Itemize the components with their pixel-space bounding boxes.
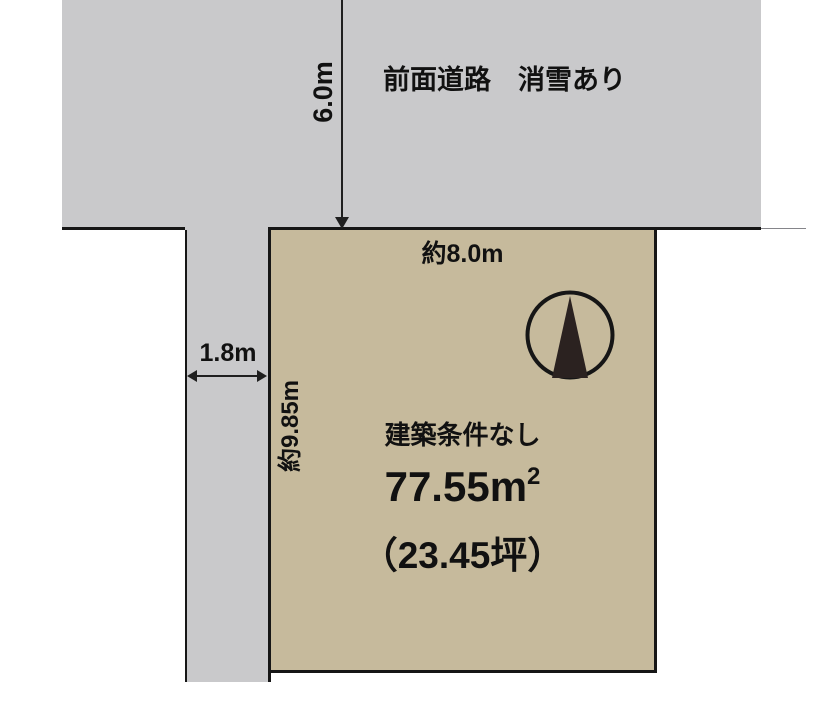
arrow-left-head-icon [187,370,197,382]
north-compass-icon [524,289,616,381]
north-needle-icon [552,296,588,378]
area-tsubo-value: （23.45坪） [268,536,657,577]
area-sqm-base: 77.55m [385,463,527,510]
side-path-width-dimension: 1.8m [185,340,271,368]
arrow-right-head-icon [257,370,267,382]
road-width-arrow-head-icon [335,217,349,229]
front-road-label: 前面道路 消雪あり [383,66,626,96]
area-sqm-value: 77.55m2 [268,466,657,508]
road-bottom-edge-line-left [62,227,185,230]
frontage-dimension: 約8.0m [268,241,657,269]
road-bottom-edge-thin-line [761,228,806,229]
road-width-arrow-line [341,0,343,219]
building-condition-label: 建築条件なし [268,421,657,450]
road-width-dimension: 6.0m [309,61,339,123]
side-path-area [185,230,271,682]
area-sqm-exponent: 2 [527,463,540,490]
side-path-width-arrow-line [195,375,262,377]
front-road-area [62,0,761,230]
road-bottom-edge-line-right [655,227,761,230]
land-plot-diagram: 6.0m 前面道路 消雪あり 1.8m 約8.0m 約9.85m 建築条件なし … [0,0,823,720]
